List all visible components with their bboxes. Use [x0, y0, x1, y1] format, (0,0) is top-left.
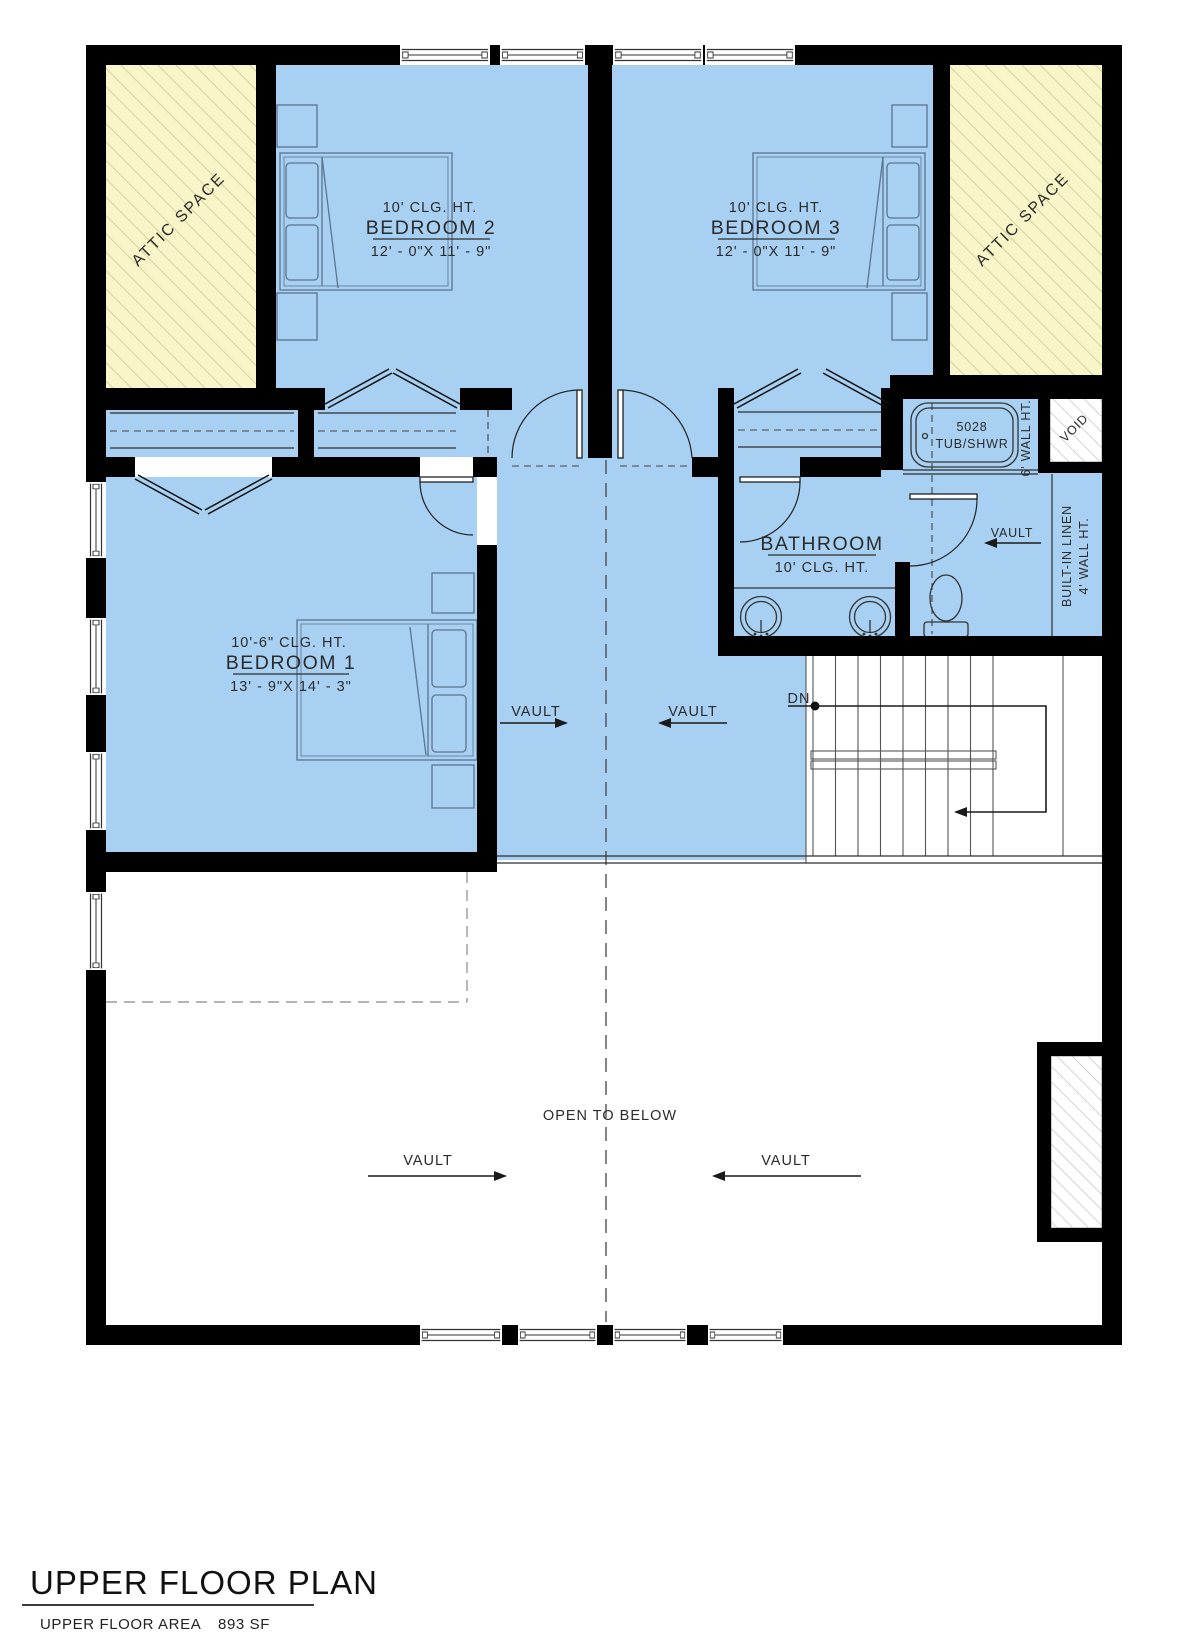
- title-underline: [22, 1604, 314, 1606]
- floor-plan-page: ATTIC SPACE ATTIC SPACE 10' CLG. HT. BED…: [0, 0, 1200, 1649]
- plan-title: UPPER FLOOR PLAN: [30, 1564, 378, 1602]
- area-value: 893 SF: [218, 1616, 270, 1633]
- area-label: UPPER FLOOR AREA: [40, 1616, 201, 1633]
- title-block: UPPER FLOOR PLAN UPPER FLOOR AREA 893 SF: [0, 0, 1200, 1649]
